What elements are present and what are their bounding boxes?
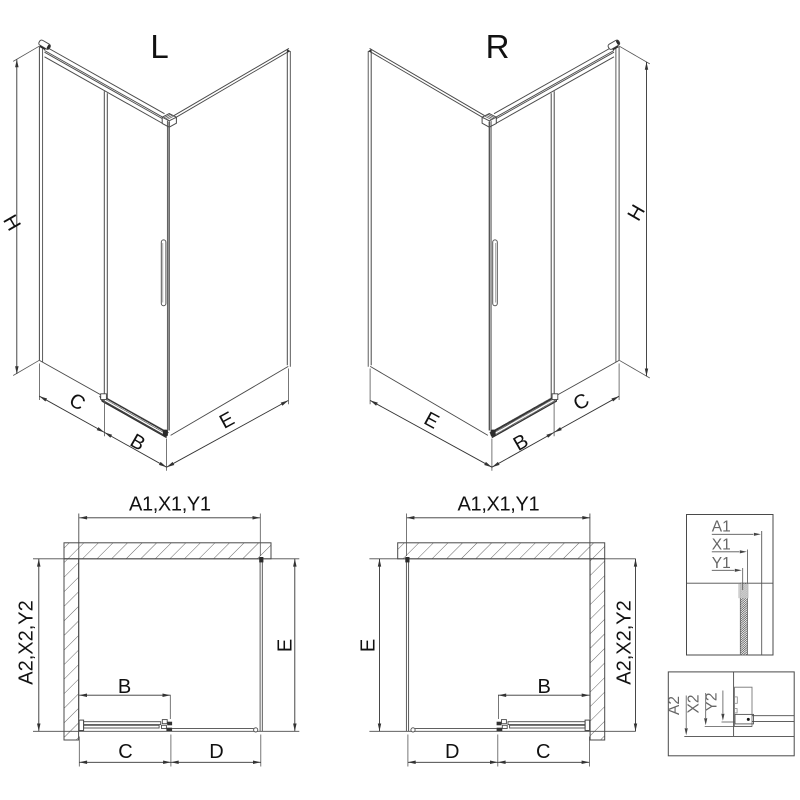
svg-text:L: L: [150, 28, 168, 65]
svg-text:C: C: [536, 741, 550, 763]
svg-text:A2: A2: [666, 696, 683, 715]
svg-text:B: B: [118, 676, 131, 698]
svg-text:D: D: [445, 741, 459, 763]
svg-text:Y1: Y1: [712, 555, 731, 572]
svg-text:X2: X2: [685, 695, 702, 714]
svg-text:E: E: [275, 639, 297, 652]
svg-text:A1,X1,Y1: A1,X1,Y1: [458, 494, 540, 516]
svg-text:B: B: [538, 676, 551, 698]
svg-text:E: E: [357, 639, 379, 652]
svg-text:C: C: [118, 741, 132, 763]
svg-text:Y2: Y2: [704, 693, 721, 712]
svg-text:A1,X1,Y1: A1,X1,Y1: [129, 494, 211, 516]
svg-text:D: D: [209, 741, 223, 763]
svg-text:R: R: [486, 28, 510, 65]
svg-text:A2,X2,Y2: A2,X2,Y2: [614, 600, 636, 685]
svg-text:X1: X1: [712, 536, 731, 553]
svg-text:A2,X2,Y2: A2,X2,Y2: [15, 600, 37, 685]
svg-text:A1: A1: [712, 519, 731, 536]
